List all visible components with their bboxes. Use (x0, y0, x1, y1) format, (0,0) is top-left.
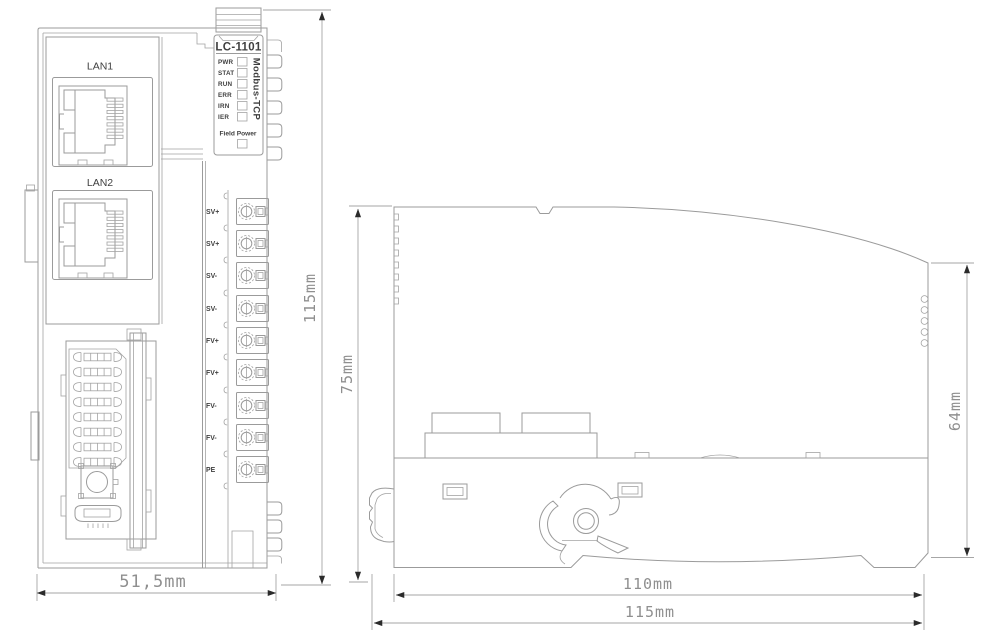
din-release-hook (370, 488, 395, 542)
led-indicator (238, 91, 248, 100)
terminal-label: SV+ (206, 209, 219, 216)
protocol-label: Modbus-TCP (251, 58, 262, 121)
terminal-block (237, 425, 269, 451)
din-rail-clip (443, 484, 467, 499)
dim-front-width-text: 51,5mm (119, 572, 186, 592)
terminal-label: SV- (206, 306, 218, 313)
dim-side-height-text: 75mm (338, 354, 356, 394)
led-indicator (238, 58, 248, 67)
led-indicator (238, 69, 248, 78)
dimension-annotations: 51,5mm 115mm 75mm 64mm 110mm (37, 10, 974, 630)
terminal-block (237, 263, 269, 289)
din-rail-clip (618, 483, 642, 497)
led-label-stat: STAT (218, 70, 234, 77)
terminal-block (237, 231, 269, 257)
terminal-label: SV+ (206, 241, 219, 248)
status-label-panel: LC-1101 PWR STAT RUN ERR IRN IER Modbus-… (214, 35, 263, 155)
terminal-block (237, 328, 269, 354)
led-indicator (238, 113, 248, 122)
terminal-label: SV- (206, 273, 218, 280)
field-power-label: Field Power (219, 131, 256, 138)
dim-side-height: 75mm (338, 206, 392, 582)
dim-side-body-height-text: 64mm (946, 391, 964, 431)
contact-row (74, 383, 122, 392)
terminal-label: PE (206, 467, 216, 474)
terminal-block (237, 457, 269, 483)
micro-usb-port (75, 506, 121, 529)
terminal-label: FV+ (206, 338, 219, 345)
side-left-serrations (394, 214, 399, 304)
led-indicator (238, 80, 248, 89)
contact-row (74, 443, 122, 452)
terminal-label: FV- (206, 435, 217, 442)
lan1-label: LAN1 (87, 61, 113, 73)
dim-front-width: 51,5mm (37, 572, 276, 601)
din-rail-latch (540, 484, 628, 564)
field-power-led (238, 140, 248, 149)
led-label-pwr: PWR (218, 59, 234, 66)
model-number: LC-1101 (215, 42, 262, 54)
led-label-ier: IER (218, 114, 229, 121)
contact-row (74, 458, 122, 467)
lan-panel: LAN1 LAN2 (46, 37, 162, 324)
right-serrated-edge (267, 40, 282, 564)
terminal-block (237, 296, 269, 322)
side-connector-platform (425, 413, 597, 458)
left-tabs (25, 185, 39, 460)
dim-side-total-depth-text: 115mm (625, 603, 675, 621)
terminal-strip: SV+ SV+ SV- SV- FV+ FV+ FV- FV- PE (206, 190, 269, 568)
side-housing-outline (394, 207, 928, 568)
contact-row (74, 413, 122, 422)
contact-row (74, 353, 122, 362)
terminal-block (237, 360, 269, 386)
side-right-scallops (921, 296, 928, 347)
dim-side-depth-text: 110mm (623, 575, 673, 593)
led-label-run: RUN (218, 81, 232, 88)
module-dimension-drawing: LAN1 LAN2 (0, 0, 997, 634)
contact-row (74, 398, 122, 407)
technical-drawing-page: LAN1 LAN2 (0, 0, 997, 634)
terminal-label: FV+ (206, 370, 219, 377)
terminal-block (237, 199, 269, 225)
terminal-block (237, 393, 269, 419)
config-panel (61, 329, 156, 550)
side-view (370, 207, 929, 568)
contact-row (74, 368, 122, 377)
led-label-irn: IRN (218, 103, 230, 110)
dim-front-height: 115mm (263, 10, 331, 585)
section-split-lines (161, 149, 203, 159)
lan2-label: LAN2 (87, 177, 113, 189)
dim-side-depth: 110mm (394, 574, 924, 630)
lan2-port (53, 191, 153, 280)
reset-button (79, 464, 119, 499)
terminal-label: FV- (206, 403, 217, 410)
lan1-port (53, 78, 153, 167)
contact-row (74, 428, 122, 437)
front-view: LAN1 LAN2 (25, 8, 282, 568)
led-label-err: ERR (218, 92, 232, 99)
dim-side-body-height: 64mm (931, 263, 974, 558)
dim-front-height-text: 115mm (301, 273, 319, 323)
led-indicator (238, 102, 248, 111)
